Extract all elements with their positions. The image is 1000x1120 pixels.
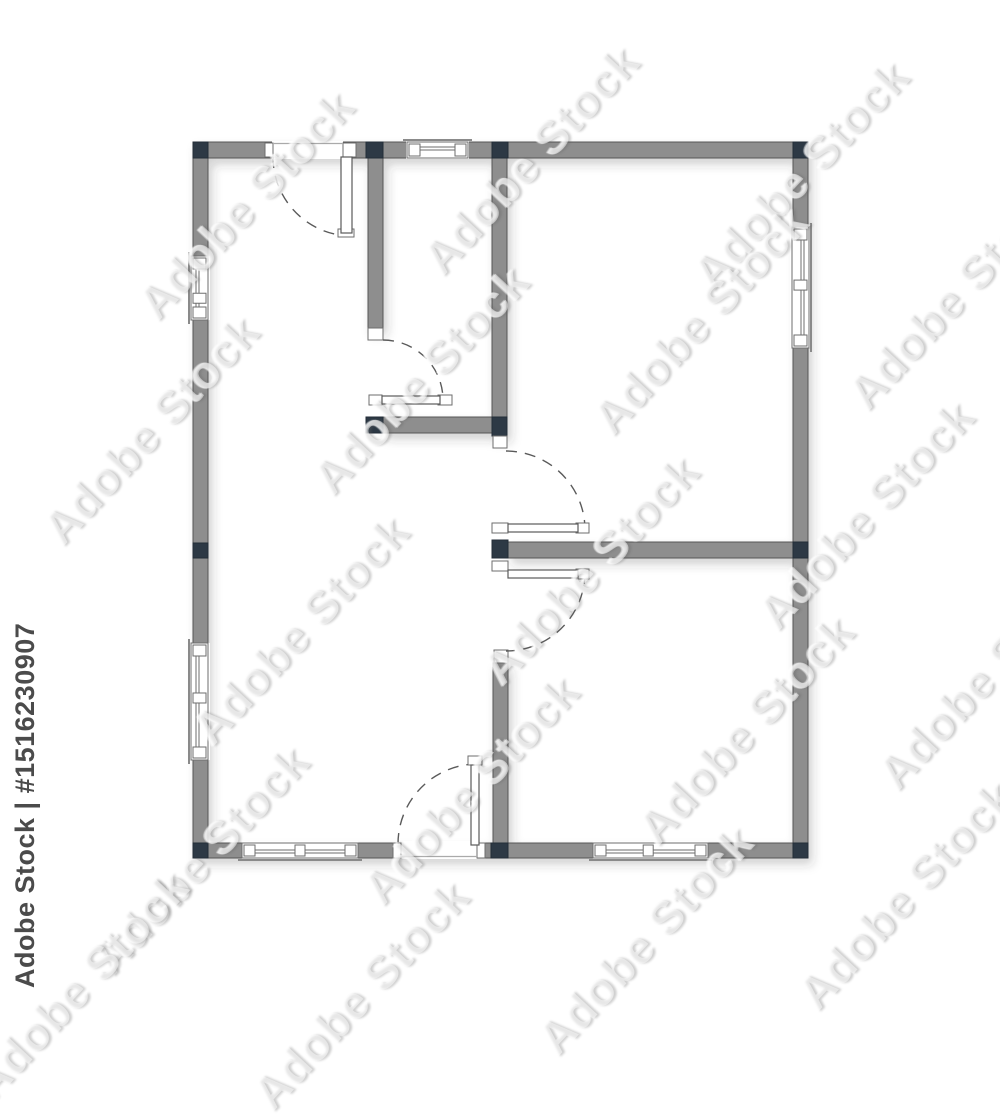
window-end-block (794, 229, 807, 240)
window-end-block (595, 845, 606, 856)
window-mullion (794, 280, 807, 290)
door-cap (492, 561, 508, 571)
post-bottom-wall-e (491, 843, 508, 858)
door-cap (492, 523, 508, 533)
post-left-mid (193, 543, 208, 558)
door-leaf (508, 570, 578, 578)
window-end-block (193, 307, 206, 318)
post-bottom-left (193, 843, 208, 858)
window-bottom-right (589, 843, 712, 860)
door-cap (343, 143, 356, 157)
window-mullion (643, 845, 653, 856)
post-top-right (793, 142, 808, 158)
door-swing-arc (383, 340, 443, 400)
window-right (792, 223, 811, 352)
door-center-upper (492, 451, 589, 533)
door-swing-arc (273, 157, 352, 236)
post-bottom-right (793, 843, 808, 858)
door-center-lower (492, 561, 589, 651)
stock-image: Adobe StockAdobe StockAdobe StockAdobe S… (0, 0, 1000, 1000)
post-closet-bottom-right (492, 417, 507, 436)
interior-wall-center (508, 542, 793, 558)
window-end-block (193, 747, 206, 758)
window-end-block (193, 645, 206, 656)
post-top-wall-a (366, 142, 383, 158)
jamb-wall-a-end (368, 328, 383, 340)
window-bottom-left (238, 843, 362, 860)
door-swing-arc (398, 764, 474, 844)
door-cap (468, 756, 482, 765)
door-leaf (471, 765, 479, 845)
jamb-wall-b-end (493, 436, 507, 448)
window-left-lower (189, 639, 208, 764)
interior-wall-closet-bottom (383, 417, 492, 433)
window-left-upper (189, 252, 208, 324)
door-swing-arc (506, 451, 585, 529)
window-end-block (455, 144, 466, 156)
interior-wall-hall-right (492, 158, 507, 436)
jamb-entrance-left (393, 843, 401, 858)
jambs-layer (265, 143, 508, 858)
door-closet (369, 340, 452, 405)
window-end-block (695, 845, 706, 856)
post-top-wall-b (492, 142, 508, 158)
walls-layer (193, 142, 808, 858)
door-leaf (508, 524, 578, 532)
window-end-block (244, 845, 255, 856)
door-entrance (398, 756, 482, 845)
post-closet-bottom-left (366, 417, 383, 433)
floor-plan-drawing (0, 0, 1000, 1000)
door-leaf (341, 157, 352, 233)
interior-wall-lower (493, 663, 508, 843)
window-end-block (794, 335, 807, 346)
interior-wall-closet-left (368, 158, 383, 329)
window-mullion (295, 845, 305, 856)
window-top (403, 140, 472, 158)
door-leaf (382, 396, 440, 404)
window-end-block (193, 258, 206, 269)
post-right-mid (793, 542, 808, 558)
door-cap (369, 395, 382, 405)
watermark-credit: Adobe Stock | #1516230907 (10, 623, 41, 988)
jamb-top-door-left (265, 143, 273, 157)
window-mullion (193, 293, 206, 303)
post-top-left (193, 142, 208, 158)
window-end-block (345, 845, 356, 856)
window-mullion (193, 693, 206, 703)
doors-layer (273, 143, 589, 845)
window-end-block (409, 144, 420, 156)
jamb-wall-e-top (494, 650, 508, 663)
post-center-stub (492, 540, 508, 558)
door-swing-arc (506, 573, 585, 651)
